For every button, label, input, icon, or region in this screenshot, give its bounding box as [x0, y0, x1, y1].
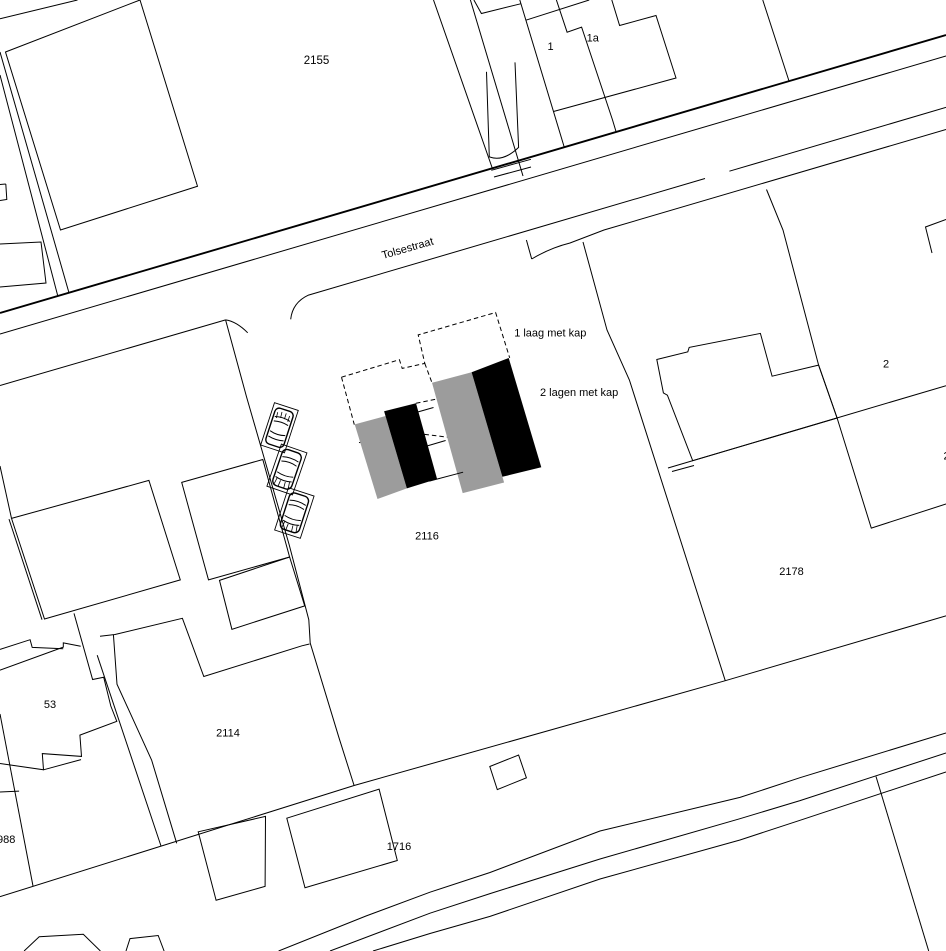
svg-text:53: 53 [44, 699, 56, 711]
svg-text:1: 1 [547, 41, 553, 53]
svg-text:2: 2 [883, 359, 889, 371]
svg-text:1 laag met kap: 1 laag met kap [514, 328, 586, 340]
svg-text:2178: 2178 [779, 566, 803, 578]
svg-text:1716: 1716 [387, 841, 411, 853]
svg-text:2155: 2155 [304, 55, 330, 67]
svg-text:2 lagen met kap: 2 lagen met kap [540, 387, 618, 399]
svg-text:2114: 2114 [216, 727, 240, 739]
svg-text:1a: 1a [587, 32, 600, 44]
svg-text:2116: 2116 [415, 530, 439, 542]
svg-text:988: 988 [0, 834, 15, 846]
